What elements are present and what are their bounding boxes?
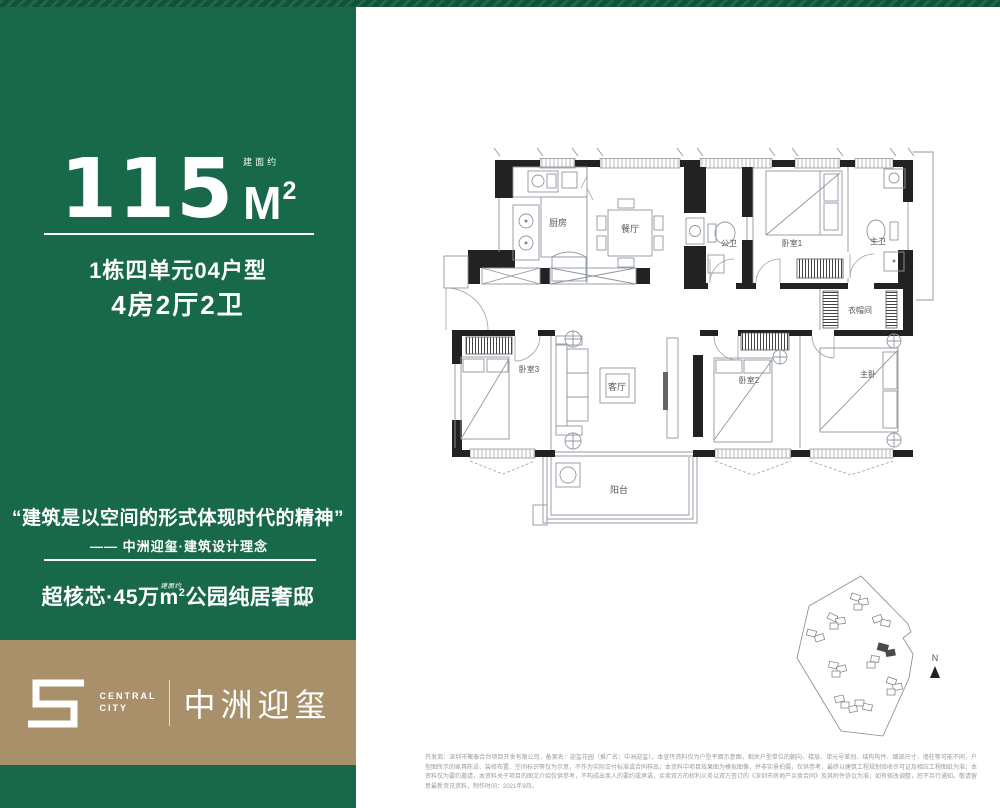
room-label-public-bath: 公卫	[721, 239, 737, 248]
site-building-highlighted	[877, 643, 895, 657]
room-label-master-bedroom: 主卧	[860, 369, 876, 379]
svg-text:N: N	[932, 653, 939, 663]
rooms-line: 4房2厅2卫	[0, 285, 356, 322]
dimension-ticks	[494, 148, 914, 156]
room-label-bedroom1: 卧室1	[782, 238, 803, 248]
quote-source: —— 中洲迎玺·建筑设计理念	[0, 536, 356, 555]
logo-en-text: CENTRAL CITY	[99, 691, 156, 714]
bottom-decor-band	[0, 765, 356, 808]
room-label-kitchen: 厨房	[549, 217, 567, 228]
slogan-line: 超核芯·45万建面约m2公园纯居奢邸	[0, 581, 356, 611]
room-label-living: 客厅	[608, 381, 626, 392]
room-label-master-bath: 主卫	[870, 236, 886, 246]
area-number: 115	[60, 157, 234, 223]
quote-text: “建筑是以空间的形式体现时代的精神”	[0, 503, 356, 530]
divider-line	[44, 233, 314, 235]
area-approx-label: 建面约	[243, 157, 279, 167]
furniture	[461, 167, 905, 487]
floor-plan: 厨房 餐厅 公卫 卧室1 主卫 衣帽间 卧室3 客厅 卧室2 主卧 阳台	[435, 122, 950, 600]
disclaimer-text: 开发商：深圳市聚泰合台项目开发有限公司，备案名：迎玺花园（推广名：中洲迎玺），本…	[425, 754, 977, 792]
wardrobes	[466, 259, 897, 354]
room-label-bedroom3: 卧室3	[519, 364, 540, 374]
room-label-balcony: 阳台	[610, 484, 628, 495]
site-buildings	[806, 593, 902, 713]
divider-line-2	[44, 559, 316, 561]
central-city-logo-mark	[24, 675, 86, 731]
top-decor-strip	[0, 0, 1000, 7]
poster: 115 建面约 M2 1栋四单元04户型 4房2厅2卫 “建筑是以空间的形式体现…	[0, 0, 1000, 808]
room-label-bedroom2: 卧室2	[739, 375, 760, 385]
area-headline: 115 建面约 M2	[60, 157, 296, 227]
logo-cn-text: 中洲迎玺	[183, 680, 331, 726]
left-panel: 115 建面约 M2 1栋四单元04户型 4房2厅2卫 “建筑是以空间的形式体现…	[0, 7, 356, 640]
unit-type-line: 1栋四单元04户型	[0, 253, 356, 285]
slogan-approx-label: 建面约	[161, 580, 182, 590]
north-arrow-icon: N	[930, 653, 940, 678]
room-label-cloakroom: 衣帽间	[848, 305, 872, 315]
logo-band: CENTRAL CITY 中洲迎玺	[0, 640, 356, 765]
kitchen-bay-boxes	[482, 268, 636, 284]
site-plan: N	[783, 566, 978, 748]
area-unit: M2	[243, 167, 296, 227]
area-unit-block: 建面约 M2	[243, 157, 296, 227]
logo-divider	[169, 680, 170, 726]
room-label-dining: 餐厅	[621, 223, 639, 234]
fold-dashes	[470, 461, 893, 475]
